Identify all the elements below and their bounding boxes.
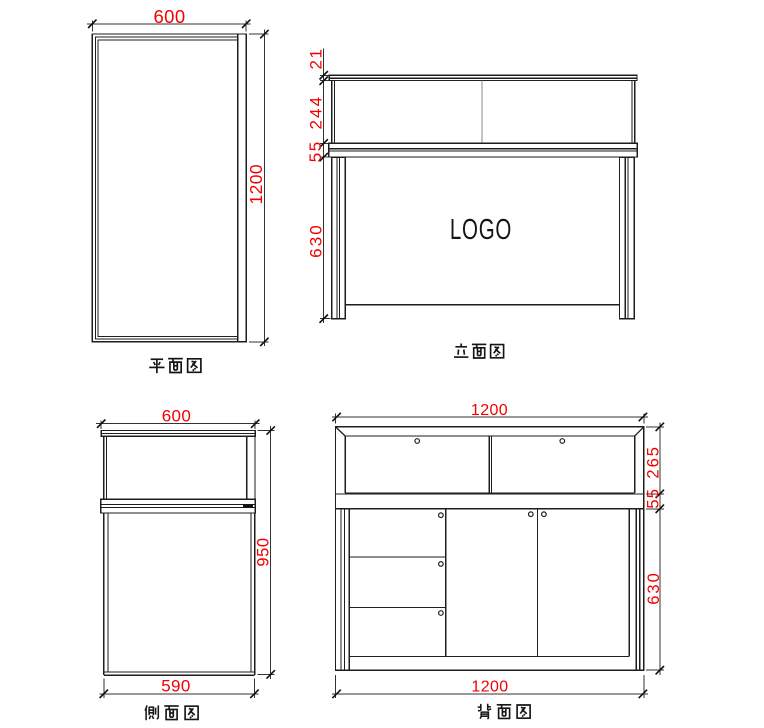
svg-text:630: 630 bbox=[645, 571, 663, 605]
svg-text:21: 21 bbox=[306, 47, 325, 69]
svg-text:1200: 1200 bbox=[471, 679, 508, 696]
svg-text:630: 630 bbox=[306, 223, 325, 258]
svg-text:1200: 1200 bbox=[471, 402, 508, 419]
svg-text:600: 600 bbox=[153, 6, 185, 27]
svg-text:265: 265 bbox=[644, 445, 662, 479]
svg-text:LOGO: LOGO bbox=[450, 215, 512, 246]
svg-text:590: 590 bbox=[161, 677, 191, 696]
svg-text:244: 244 bbox=[307, 95, 326, 130]
svg-text:950: 950 bbox=[255, 537, 273, 566]
svg-text:1200: 1200 bbox=[246, 164, 266, 205]
svg-text:600: 600 bbox=[162, 406, 192, 425]
svg-text:55: 55 bbox=[306, 140, 325, 162]
svg-text:55: 55 bbox=[644, 488, 662, 509]
